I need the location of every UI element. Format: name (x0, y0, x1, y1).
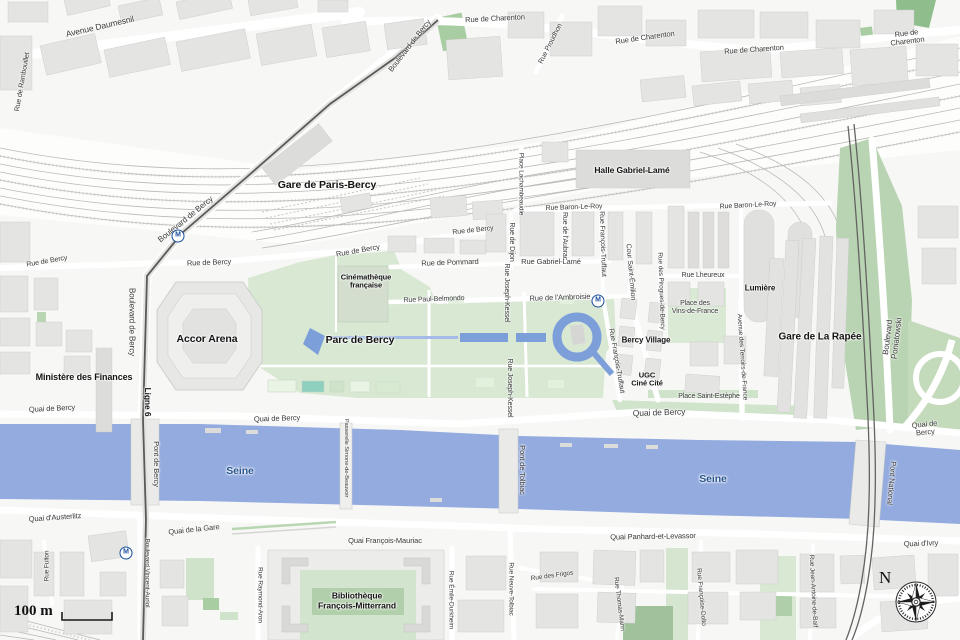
metro-station-icon: M (172, 230, 185, 243)
metro-station-icon: M (592, 295, 605, 308)
metro-station-icon: M (120, 547, 133, 560)
halle-gabriel-lame-building (576, 150, 690, 188)
cinematheque-building (338, 266, 388, 322)
passerelle-simone-de-beauvoir (340, 423, 352, 509)
compass-north-label: N (879, 568, 891, 588)
map-canvas: Avenue DaumesnilRue de RambouilletBoulev… (0, 0, 960, 640)
bibliotheque-building (268, 550, 444, 640)
compass-rose (896, 582, 936, 622)
pont-de-tolbiac (499, 429, 518, 513)
scale-label: 100 m (14, 603, 53, 620)
map-art (0, 0, 960, 640)
